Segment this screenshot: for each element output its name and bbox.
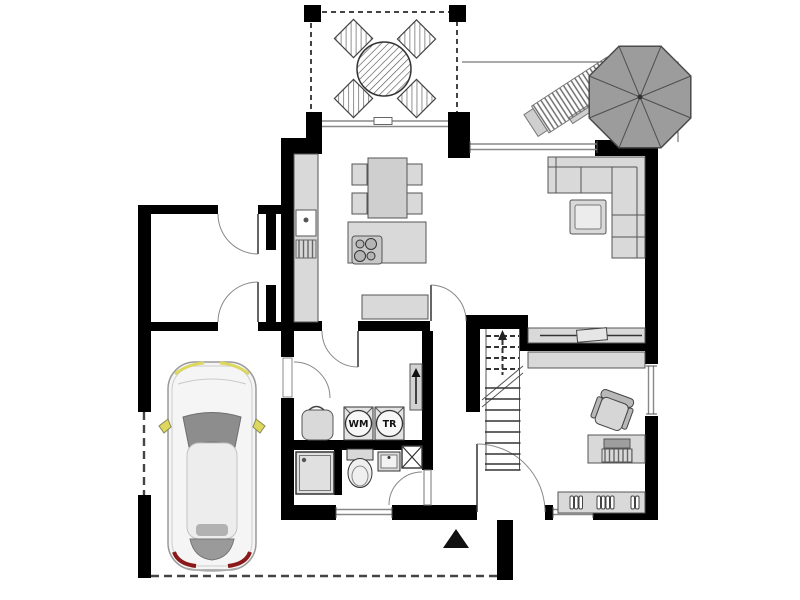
door-swing-arc [322,331,358,367]
door-swing-arc [218,282,258,322]
parasol [589,46,691,148]
dining-chair [407,193,422,214]
office-chair [589,388,637,434]
entrance-arrow-icon [443,529,469,548]
door-swing-arc [218,214,258,254]
floor-plan: WM TR [0,0,800,600]
office-wardrobe [528,352,645,368]
wall-segment [448,112,470,158]
door-swing-arc [294,362,330,398]
toilet [347,449,373,488]
dining-set [352,158,422,218]
bookshelf [558,492,645,513]
patio [304,5,466,118]
laundry-basket [302,410,333,440]
dining-chair [352,164,367,185]
sink-drainer [296,240,316,258]
kitchen-sink [296,210,316,236]
stair-break-line [482,373,523,407]
computer-screen [604,439,630,448]
vent-duct [410,364,422,410]
cooktop [352,236,382,264]
wall-segment [334,450,342,495]
office [528,352,645,513]
living-window [470,141,597,153]
patio-post [304,5,321,22]
door-swing-arc [389,472,422,505]
wall-segment [466,329,480,412]
wall-segment [520,343,645,351]
dining-chair [407,164,422,185]
patio-table [357,42,411,96]
washbasin [378,452,400,471]
wall-segment [306,112,322,154]
stair-treads-upper [486,336,519,375]
coffee-table-top [575,205,601,229]
windshield [183,413,241,448]
dryer-label: TR [383,419,397,430]
sink-drain [304,218,309,223]
wall-segment [645,140,658,520]
shaft [402,446,422,468]
floor-plan-page: WM TR [0,0,800,600]
coat-rack-box [577,328,608,343]
kitchen-counter [294,154,318,322]
wall-segment [138,322,294,331]
living-room [528,157,645,343]
wall-segment [138,205,294,214]
bathroom [296,446,422,494]
wall-segment [266,285,276,322]
shower [296,452,334,494]
kitchen [294,154,428,322]
door-leaf [424,470,431,505]
laundry-basket-lid [309,407,324,411]
wall-segment [138,495,151,578]
kitchen-sideboard [362,295,428,319]
dryer: TR [375,407,404,440]
computer-keyboard [602,449,632,462]
patio-post [449,5,466,22]
car [159,362,265,571]
dining-table [368,158,407,218]
carport-door-panel [283,358,292,397]
dining-chair [352,193,367,214]
utility-room: WM TR [302,364,422,440]
wall-segment [497,518,513,580]
door-swing-arc [431,285,466,321]
wall-segment [266,214,276,250]
stair-break-line [482,366,523,400]
washing-machine-label: WM [349,419,369,430]
washing-machine: WM [344,407,373,440]
wall-segment [138,205,151,412]
wall-segment [466,315,528,329]
sliding-door [322,118,448,127]
